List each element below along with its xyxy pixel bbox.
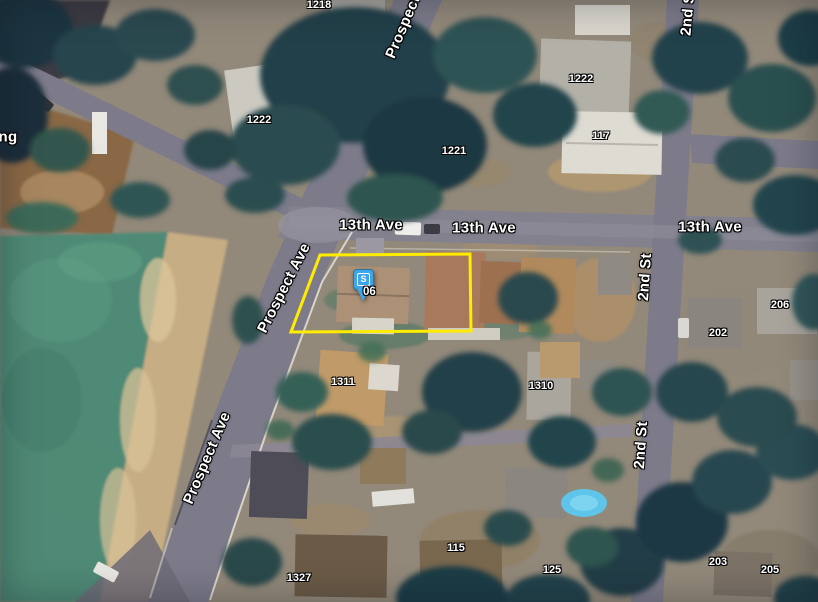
- marker-sublabel: 06: [363, 286, 376, 298]
- satellite-map[interactable]: Prospect13th Ave13th Ave13th Ave2nd St2n…: [0, 0, 818, 602]
- satellite-imagery: [0, 0, 818, 602]
- marker-inner-square: S: [357, 273, 370, 286]
- marker-letter: S: [360, 275, 366, 284]
